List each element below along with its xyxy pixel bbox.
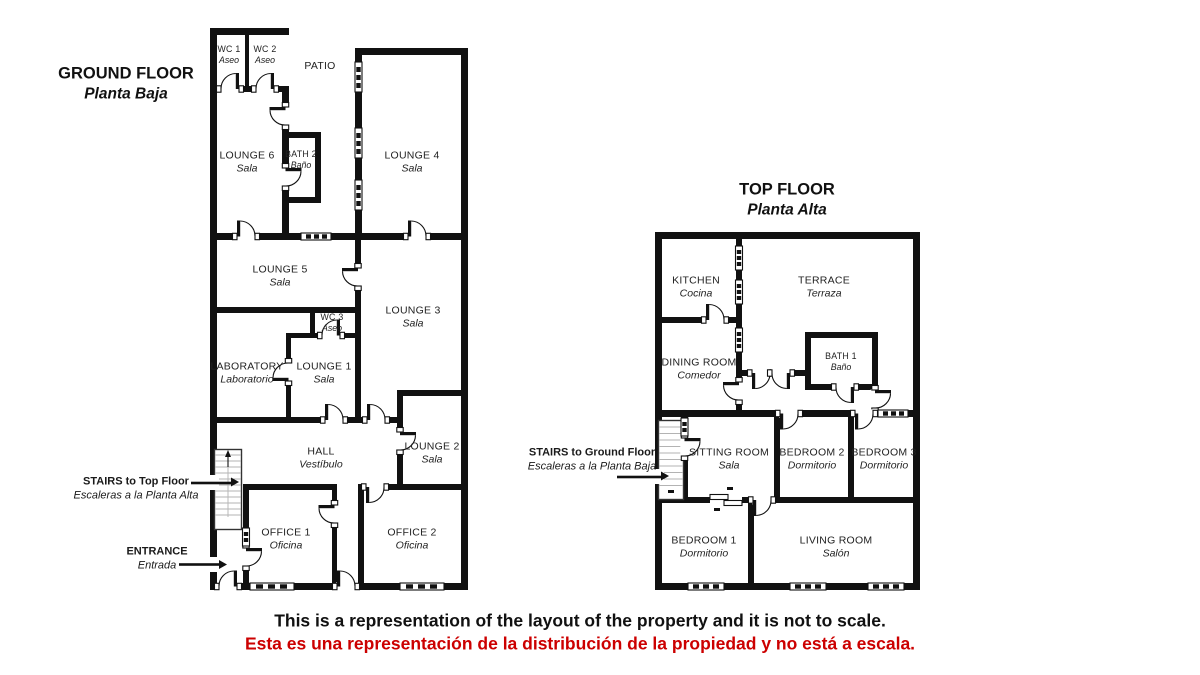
annotation-stairs-top-floor: STAIRS to Top Floor Escaleras a la Plant… [74, 476, 199, 503]
door-icon [871, 386, 891, 413]
window-icon [790, 583, 826, 590]
window-icon [681, 418, 688, 436]
ground-floor-title: GROUND FLOOR Planta Baja [58, 65, 194, 104]
door-icon [362, 483, 389, 503]
door-icon [252, 73, 279, 93]
floor-plan-page: GROUND FLOOR Planta Baja TOP FLOOR Plant… [0, 0, 1200, 675]
window-icon [736, 280, 743, 304]
room-label-bedroom3: BEDROOM 3 Dormitorio [851, 447, 916, 472]
room-label-living: LIVING ROOM Salón [800, 535, 873, 560]
annotation-entrance: ENTRANCE Entrada [126, 546, 187, 573]
window-icon [736, 246, 743, 270]
room-label-patio: PATIO [304, 60, 335, 73]
door-icon [242, 544, 262, 571]
room-label-dining: DINING ROOM Comedor [661, 357, 736, 382]
window-icon [868, 583, 904, 590]
door-icon [215, 571, 242, 591]
room-label-lounge1: LOUNGE 1 Sala [296, 361, 351, 386]
room-label-lounge6: LOUNGE 6 Sala [219, 150, 274, 175]
stairs-arrow-icon [617, 476, 661, 479]
room-label-lounge4: LOUNGE 4 Sala [384, 150, 439, 175]
sliding-door-icon [710, 487, 742, 511]
room-label-hall: HALL Vestíbulo [299, 446, 342, 471]
room-label-lounge2: LOUNGE 2 Sala [404, 441, 459, 466]
top-floor-plan [617, 232, 920, 590]
door-icon [342, 264, 362, 291]
door-icon [270, 103, 290, 130]
door-icon [702, 304, 729, 324]
door-icon [217, 73, 244, 93]
room-label-lounge5: LOUNGE 5 Sala [252, 264, 307, 289]
stairs-icon [659, 421, 684, 500]
window-icon [355, 180, 362, 210]
room-label-office1: OFFICE 1 Oficina [261, 527, 310, 552]
top-floor-title-es: Planta Alta [739, 200, 835, 220]
room-label-bath2: BATH 2 Baño [285, 149, 317, 171]
room-label-sitting: SITTING ROOM Sala [689, 447, 769, 472]
window-icon [301, 233, 331, 240]
room-label-lounge3: LOUNGE 3 Sala [385, 305, 440, 330]
top-floor-title: TOP FLOOR Planta Alta [739, 181, 835, 220]
door-icon [723, 378, 743, 405]
window-icon [736, 328, 743, 352]
window-icon [355, 128, 362, 158]
door-icon [321, 404, 348, 424]
disclaimer-english: This is a representation of the layout o… [274, 611, 886, 632]
window-icon [250, 583, 294, 590]
door-icon [233, 221, 260, 241]
room-label-bedroom1: BEDROOM 1 Dormitorio [671, 535, 736, 560]
room-label-wc2: WC 2 Aseo [254, 44, 277, 66]
ground-floor-title-en: GROUND FLOOR [58, 65, 194, 85]
room-label-wc3: WC 3 Aseo [321, 312, 344, 334]
door-icon [851, 409, 878, 429]
door-icon [319, 501, 339, 528]
door-icon [768, 369, 795, 389]
room-label-bath1: BATH 1 Baño [825, 351, 857, 373]
window-icon [878, 410, 908, 417]
top-floor-stairs [659, 421, 684, 500]
door-icon [832, 383, 859, 403]
room-label-wc1: WC 1 Aseo [218, 44, 241, 66]
window-icon [688, 583, 724, 590]
disclaimer-spanish: Esta es una representación de la distrib… [245, 634, 915, 655]
window-icon [400, 583, 444, 590]
window-icon [243, 528, 250, 546]
annotation-stairs-ground-floor: STAIRS to Ground Floor Escaleras a la Pl… [528, 447, 656, 474]
room-label-bedroom2: BEDROOM 2 Dormitorio [779, 447, 844, 472]
room-label-laboratory: LABORATORY Laboratorio [210, 361, 283, 386]
ground-floor-title-es: Planta Baja [58, 84, 194, 104]
window-icon [355, 62, 362, 92]
door-icon [363, 404, 390, 424]
room-label-terrace: TERRACE Terraza [798, 275, 850, 300]
room-label-office2: OFFICE 2 Oficina [387, 527, 436, 552]
top-floor-title-en: TOP FLOOR [739, 181, 835, 201]
room-label-kitchen: KITCHEN Cocina [672, 275, 720, 300]
door-icon [404, 221, 431, 241]
